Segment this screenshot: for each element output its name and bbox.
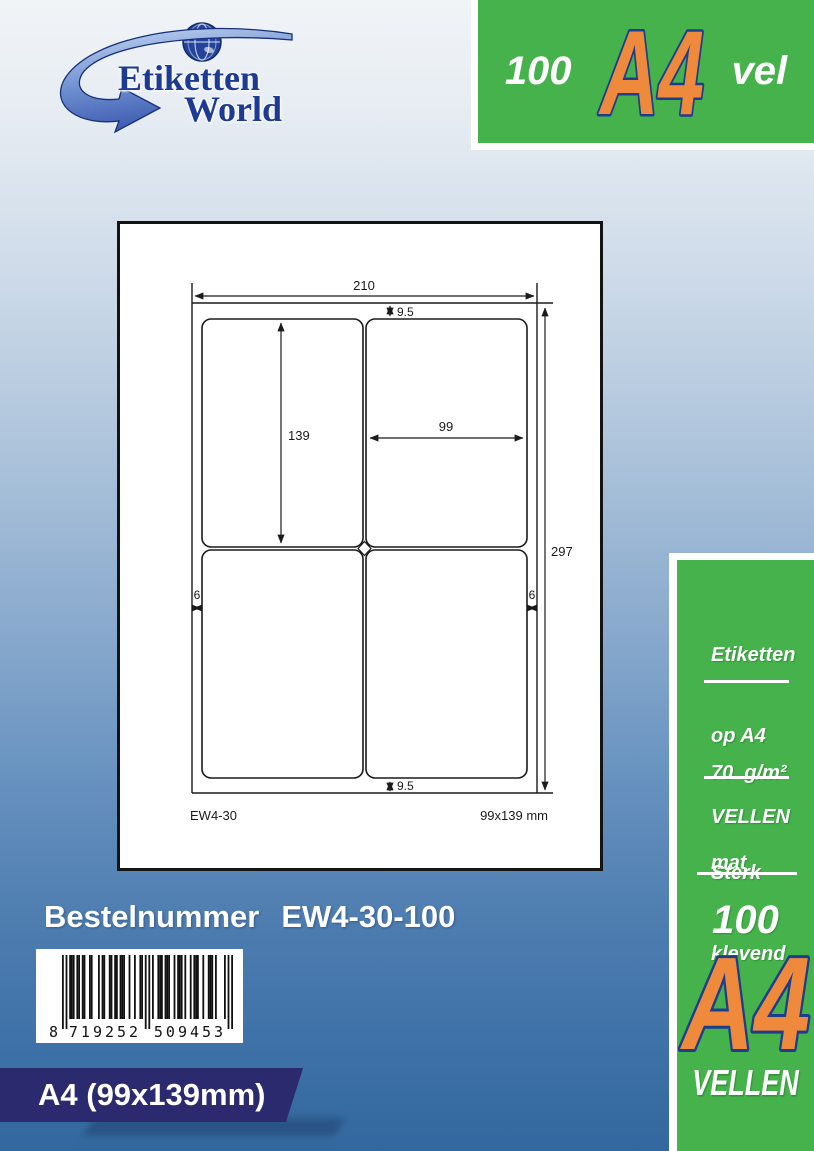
badge-a4-graphic: A4 [596,20,708,124]
badge-unit: vel [732,49,788,94]
panel-a4-svg: A4 [678,945,814,1061]
dimension-width-label: 210 [353,278,375,293]
panel-count: 100 [677,898,814,943]
label-outline [366,550,527,778]
order-number-line: Bestelnummer EW4-30-100 [44,899,455,935]
order-label: Bestelnummer [44,899,259,935]
divider [704,776,789,779]
top-quantity-badge: 100 A4 vel [471,0,814,150]
logo-word-world: World [184,91,282,127]
divider [697,872,797,875]
side-info-panel: Etiketten op A4 VELLEN 70 g/m² mat Sterk… [669,553,814,1151]
panel-paper-weight: 70 g/m² [711,758,787,788]
panel-unit: VELLEN [677,1063,814,1105]
format-banner-text: A4 (99x139mm) [38,1077,265,1112]
barcode: 8 719252 509453 [36,949,243,1043]
dimension-top-margin-label: 9.5 [397,305,414,319]
dimension-label-width-label: 99 [439,419,453,434]
barcode-digits-right: 509453 [154,1023,226,1041]
diagram-label-format: 99x139 mm [480,808,548,823]
barcode-digits-left: 719252 [69,1023,141,1041]
dimension-height-label: 297 [551,544,573,559]
dimension-left-margin-label: 6 [194,588,201,602]
dimension-label-height-label: 139 [288,428,310,443]
badge-count: 100 [505,49,572,94]
label-outline [202,550,363,778]
barcode-digit-first: 8 [49,1023,58,1041]
panel-a4-graphic: A4 [677,945,814,1066]
badge-format: A4 [598,20,704,124]
divider [704,680,789,683]
etiketten-world-logo: Etiketten World [40,10,330,142]
order-number: EW4-30-100 [281,899,455,935]
barcode-graphic: 8 719252 509453 [36,949,243,1043]
dimension-right-margin-label: 6 [529,588,536,602]
center-junction-diamond [358,542,371,556]
barcode-bars [62,955,233,1029]
label-sheet-page: 210 297 9.5 139 99 6 6 9.5 EW4-30 99x139… [117,221,603,871]
format-banner: A4 (99x139mm) [0,1068,303,1122]
diagram-product-code: EW4-30 [190,808,237,823]
label-outline [202,319,363,547]
sheet-diagram: 210 297 9.5 139 99 6 6 9.5 EW4-30 99x139… [120,224,600,868]
panel-format: A4 [679,945,809,1061]
panel-headline-line1: Etiketten [711,642,795,669]
dimension-bottom-margin-label: 9.5 [397,779,414,793]
